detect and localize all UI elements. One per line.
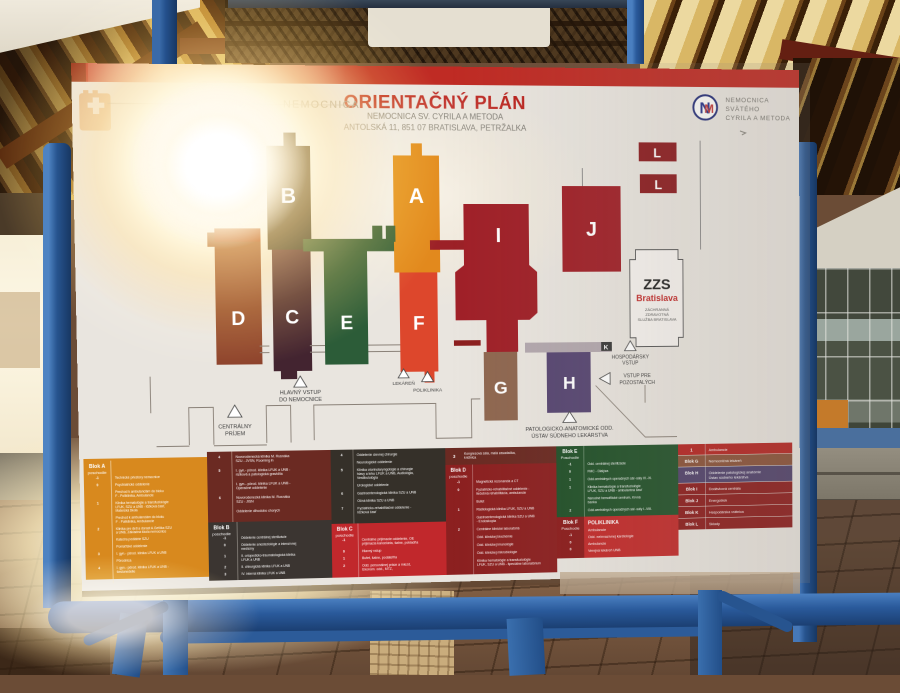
svg-text:LEKÁREŇ: LEKÁREŇ — [393, 380, 416, 387]
svg-text:G: G — [494, 377, 508, 397]
svg-text:J: J — [586, 219, 597, 241]
svg-text:PRÍJEM: PRÍJEM — [225, 430, 246, 437]
svg-text:0: 0 — [343, 550, 345, 554]
svg-text:Blok I: Blok I — [686, 487, 697, 492]
svg-text:Ústav súdneho lekárstva: Ústav súdneho lekárstva — [709, 475, 749, 480]
svg-text:Psychiatrické oddelenie: Psychiatrické oddelenie — [115, 483, 150, 487]
svg-text:DO NEMOCNICE: DO NEMOCNICE — [279, 397, 322, 403]
svg-text:banka: banka — [588, 500, 597, 504]
svg-text:-1: -1 — [223, 537, 226, 541]
svg-text:Sklady: Sklady — [709, 521, 720, 526]
svg-text:poschodie: poschodie — [88, 470, 108, 475]
svg-text:4: 4 — [218, 455, 220, 459]
svg-text:- Endoskopia: - Endoskopia — [477, 519, 496, 523]
svg-text:SZU - JVSN, Rooming in: SZU - JVSN, Rooming in — [236, 458, 274, 462]
svg-text:Ambulancie: Ambulancie — [588, 528, 606, 532]
svg-text:1: 1 — [690, 448, 693, 453]
svg-text:Blok H: Blok H — [685, 471, 699, 476]
svg-text:F - Poliklinika, Ambulancie: F - Poliklinika, Ambulancie — [116, 519, 155, 524]
svg-text:1: 1 — [343, 557, 345, 561]
svg-text:Odd. klinickej biochémie: Odd. klinickej biochémie — [477, 534, 513, 539]
svg-text:-1: -1 — [569, 533, 572, 537]
svg-text:HOSPODÁRSKY: HOSPODÁRSKY — [612, 354, 650, 361]
svg-text:Poschodie: Poschodie — [561, 455, 580, 460]
svg-text:Ekonom. odd., MTZ,: Ekonom. odd., MTZ, — [362, 567, 393, 572]
svg-text:Verejná lekáreň UNB: Verejná lekáreň UNB — [588, 548, 621, 552]
svg-text:FMC - Dialýza: FMC - Dialýza — [588, 469, 609, 473]
svg-text:2: 2 — [97, 527, 99, 531]
svg-text:0: 0 — [570, 548, 572, 552]
svg-text:POLIKLINIKA: POLIKLINIKA — [413, 388, 443, 394]
svg-text:Poniaťŕské oddelenie: Poniaťŕské oddelenie — [116, 544, 147, 549]
svg-text:B: B — [280, 183, 296, 207]
svg-text:SVÄTÉHO: SVÄTÉHO — [725, 104, 759, 113]
svg-text:Katedra pediátrie SZU: Katedra pediátrie SZU — [116, 537, 149, 542]
svg-text:3: 3 — [98, 552, 100, 556]
svg-text:VSTUP: VSTUP — [622, 361, 639, 367]
svg-text:Ambulancie: Ambulancie — [588, 542, 606, 546]
svg-text:1: 1 — [569, 478, 571, 482]
svg-text:L: L — [653, 146, 661, 160]
svg-text:C: C — [285, 307, 299, 328]
svg-text:5: 5 — [341, 469, 343, 473]
svg-text:3: 3 — [453, 454, 456, 459]
svg-text:Energoblok: Energoblok — [709, 498, 727, 503]
svg-text:7: 7 — [341, 507, 343, 511]
svg-text:Oddelenie cievnej chirurgie: Oddelenie cievnej chirurgie — [357, 452, 398, 456]
svg-text:Vestibulológia: Vestibulológia — [357, 476, 378, 480]
svg-text:3: 3 — [224, 572, 226, 576]
svg-text:Bufet, šatne, podateľňa: Bufet, šatne, podateľňa — [362, 556, 397, 561]
svg-text:-1: -1 — [569, 462, 572, 466]
svg-text:POLIKLINIKA: POLIKLINIKA — [588, 520, 619, 526]
svg-text:Bratislava: Bratislava — [636, 292, 678, 303]
svg-text:0: 0 — [458, 488, 460, 492]
svg-text:1: 1 — [97, 502, 99, 506]
svg-text:Odd. centrálnej sterilizácie: Odd. centrálnej sterilizácie — [587, 461, 625, 465]
svg-text:SZU - JISN: SZU - JISN — [236, 500, 254, 504]
svg-text:lôžková časť: lôžková časť — [357, 510, 377, 514]
svg-text:Blok J: Blok J — [685, 498, 698, 503]
svg-text:-1: -1 — [96, 476, 99, 480]
svg-text:CYRILA A METODA: CYRILA A METODA — [725, 115, 790, 122]
svg-text:0: 0 — [224, 544, 226, 548]
svg-text:PATOLOGICKO-ANATOMICKÉ ODD.: PATOLOGICKO-ANATOMICKÉ ODD. — [526, 425, 614, 433]
svg-text:-1: -1 — [457, 480, 460, 484]
svg-text:5: 5 — [218, 469, 220, 473]
svg-text:ÚSTAV SÚDNEHO LEKÁRSTVA: ÚSTAV SÚDNEHO LEKÁRSTVA — [531, 432, 608, 440]
svg-text:Blok G: Blok G — [685, 459, 699, 464]
svg-text:Nemocničná lekáreň: Nemocničná lekáreň — [709, 458, 742, 463]
svg-text:F - Poliklinika, Ambulancie: F - Poliklinika, Ambulancie — [115, 493, 154, 498]
svg-text:Operačné oddelenie: Operačné oddelenie — [236, 486, 267, 490]
svg-text:Bufet: Bufet — [476, 500, 484, 504]
svg-text:poschodie: poschodie — [336, 533, 355, 538]
svg-text:1: 1 — [458, 508, 460, 512]
svg-text:-1: -1 — [342, 538, 345, 542]
svg-text:2: 2 — [458, 528, 460, 532]
svg-text:NEMOCNICA: NEMOCNICA — [725, 97, 769, 104]
svg-text:šestonedelie: šestonedelie — [117, 570, 136, 574]
svg-text:VSTUP PRE: VSTUP PRE — [624, 373, 652, 379]
svg-text:medicíny: medicíny — [241, 547, 254, 551]
svg-text:1: 1 — [224, 554, 226, 558]
svg-text:4: 4 — [341, 453, 343, 457]
svg-text:2: 2 — [224, 565, 226, 569]
svg-text:Magnetická rezonancia a CT: Magnetická rezonancia a CT — [476, 479, 519, 484]
svg-text:LFUK a UNB: LFUK a UNB — [241, 557, 260, 561]
svg-text:Neurologické oddelenie: Neurologické oddelenie — [357, 460, 392, 464]
svg-text:2: 2 — [343, 564, 345, 568]
svg-text:knižnica: knižnica — [464, 456, 476, 460]
svg-text:Dodávková centrála: Dodávková centrála — [709, 486, 742, 491]
svg-text:0: 0 — [96, 484, 98, 488]
svg-text:poschodie: poschodie — [449, 474, 468, 479]
svg-text:Materská škola: Materská škola — [115, 509, 137, 513]
svg-text:Poschodie: Poschodie — [561, 526, 580, 531]
svg-text:poschodie: poschodie — [212, 531, 231, 536]
svg-text:1: 1 — [569, 485, 571, 489]
svg-text:6: 6 — [219, 496, 221, 500]
svg-text:Technické priestory nemocnice: Technické priestory nemocnice — [115, 475, 160, 480]
svg-text:A: A — [409, 184, 425, 208]
svg-text:4: 4 — [98, 567, 100, 571]
svg-text:Blok L: Blok L — [685, 522, 698, 527]
svg-text:POZOSTALÝCH: POZOSTALÝCH — [619, 379, 655, 386]
svg-text:ZZS: ZZS — [643, 277, 670, 293]
svg-text:HLAVNÝ VSTUP: HLAVNÝ VSTUP — [280, 389, 321, 396]
svg-text:M: M — [704, 102, 714, 115]
svg-text:CENTRÁLNY: CENTRÁLNY — [218, 423, 252, 430]
svg-text:F: F — [413, 313, 425, 334]
svg-text:E: E — [340, 313, 353, 334]
svg-text:Očná klinika SZU a UNB: Očná klinika SZU a UNB — [357, 498, 395, 503]
svg-text:K: K — [604, 345, 609, 352]
svg-text:Blok K: Blok K — [685, 510, 699, 515]
svg-text:Pôrodnica: Pôrodnica — [116, 559, 131, 563]
svg-text:I: I — [495, 225, 501, 247]
svg-text:Urologické oddelenie: Urologické oddelenie — [357, 483, 389, 487]
svg-text:Hospodárska vrátnica: Hospodárska vrátnica — [709, 509, 745, 514]
svg-text:H: H — [563, 373, 576, 393]
svg-text:SLUŽBA BRATISLAVA: SLUŽBA BRATISLAVA — [638, 317, 677, 322]
svg-text:Ambulancie: Ambulancie — [709, 447, 729, 452]
svg-text:D: D — [231, 309, 245, 330]
svg-text:Hlavný vstup: Hlavný vstup — [362, 549, 381, 553]
svg-text:6: 6 — [341, 492, 343, 496]
svg-text:2: 2 — [569, 509, 571, 513]
svg-text:0: 0 — [569, 470, 571, 474]
svg-text:riziková a patologická gravidi: riziková a patologická gravidita — [236, 472, 283, 477]
svg-text:L: L — [654, 178, 662, 192]
svg-text:0: 0 — [570, 540, 572, 544]
